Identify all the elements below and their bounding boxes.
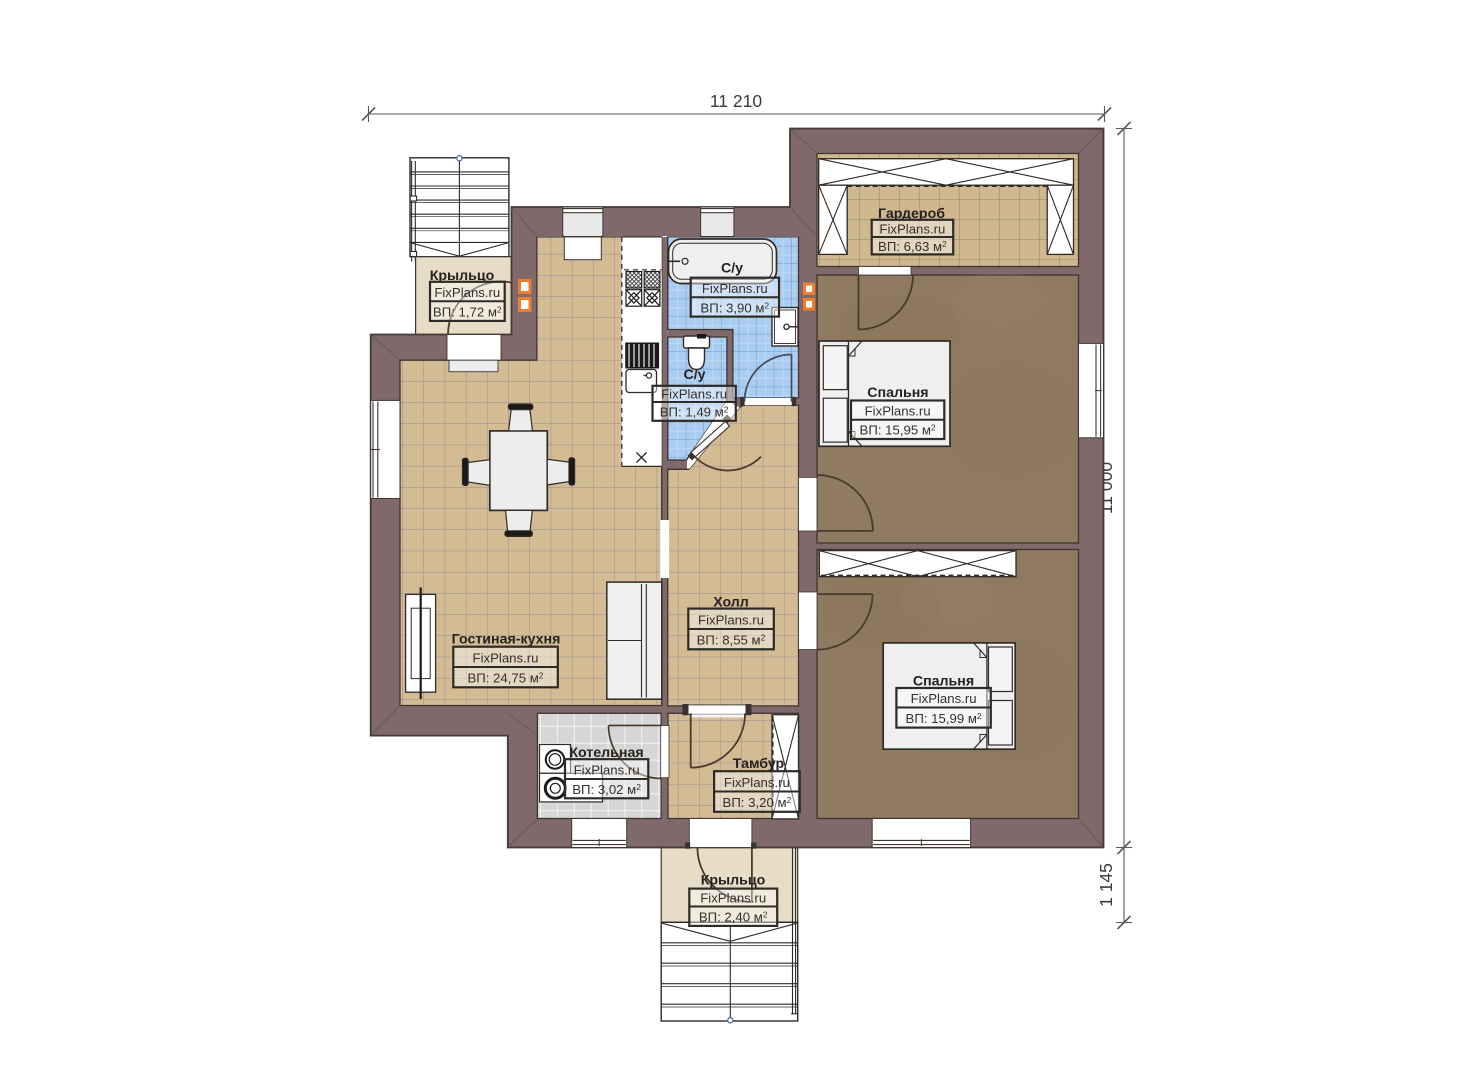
svg-text:FixPlans.ru: FixPlans.ru [724,775,790,790]
svg-text:ВП: 15,99 м2: ВП: 15,99 м2 [906,711,982,726]
svg-text:ВП: 8,55 м2: ВП: 8,55 м2 [697,633,766,648]
svg-text:Крыльцо: Крыльцо [701,873,766,889]
svg-text:ВП: 1,72 м2: ВП: 1,72 м2 [433,304,502,319]
svg-text:FixPlans.ru: FixPlans.ru [911,691,977,706]
svg-text:Спальня: Спальня [867,385,928,401]
svg-text:FixPlans.ru: FixPlans.ru [473,651,539,666]
svg-text:ВП: 3,02 м2: ВП: 3,02 м2 [572,782,641,797]
svg-text:Гостиная-кухня: Гостиная-кухня [452,632,561,648]
svg-text:Тамбур: Тамбур [733,756,785,772]
svg-text:ВП: 6,63 м2: ВП: 6,63 м2 [878,239,947,254]
svg-text:FixPlans.ru: FixPlans.ru [702,281,768,296]
svg-text:ВП: 2,40 м2: ВП: 2,40 м2 [699,910,768,925]
svg-text:С/у: С/у [683,367,705,383]
svg-text:1 145: 1 145 [1096,863,1116,907]
svg-text:FixPlans.ru: FixPlans.ru [661,387,727,402]
svg-text:ВП: 24,75 м2: ВП: 24,75 м2 [467,671,543,686]
svg-text:FixPlans.ru: FixPlans.ru [879,221,945,236]
svg-text:FixPlans.ru: FixPlans.ru [698,613,764,628]
svg-text:ВП: 3,20 м2: ВП: 3,20 м2 [723,795,792,810]
svg-text:ВП: 15,95 м2: ВП: 15,95 м2 [860,423,936,438]
svg-text:FixPlans.ru: FixPlans.ru [574,763,640,778]
svg-text:11 210: 11 210 [710,91,762,111]
svg-text:FixPlans.ru: FixPlans.ru [865,403,931,418]
svg-text:ВП: 1,49 м2: ВП: 1,49 м2 [660,405,729,420]
svg-text:С/у: С/у [721,261,743,277]
svg-text:ВП: 3,90 м2: ВП: 3,90 м2 [700,300,769,315]
svg-text:FixPlans.ru: FixPlans.ru [700,890,766,905]
svg-text:FixPlans.ru: FixPlans.ru [434,285,500,300]
